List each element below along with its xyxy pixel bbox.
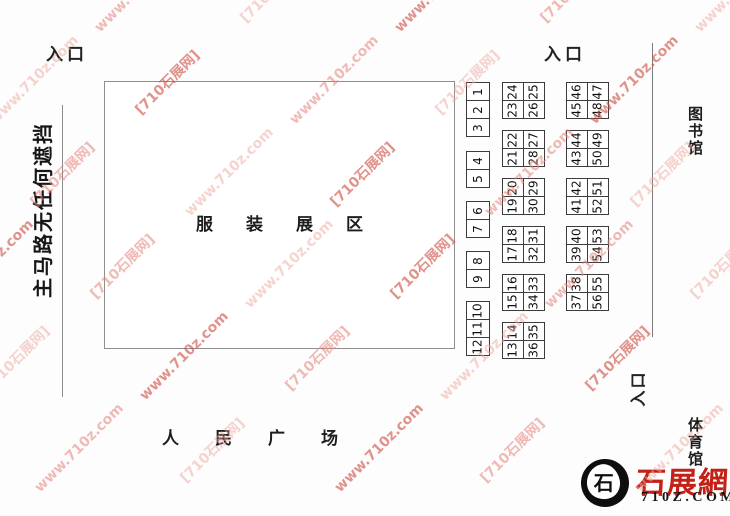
booth-number: 51: [591, 180, 605, 195]
booth-number: 4: [471, 157, 485, 165]
booth-number: 26: [527, 102, 541, 117]
booth-number: 53: [591, 228, 605, 243]
booth-number: 7: [471, 225, 485, 233]
booth-number: 18: [506, 228, 520, 243]
booth-number: 16: [506, 276, 520, 291]
watermark-text: [710石展网]: [0, 0, 9, 27]
booth-number: 14: [506, 324, 520, 339]
booth-number: 27: [527, 132, 541, 147]
booth-number: 31: [527, 228, 541, 243]
booth-number: 17: [506, 246, 520, 261]
booth-cell-47: 47: [587, 82, 609, 101]
booth-number: 54: [591, 246, 605, 261]
entrance-label-bottom-right: 入口: [625, 369, 642, 409]
watermark-text: [710石展网]: [475, 413, 549, 487]
road-boundary-line-right: [652, 43, 653, 337]
booth-cell-49: 49: [587, 130, 609, 149]
booth-number: 38: [570, 276, 584, 291]
booth-number: 2: [471, 106, 485, 114]
watermark-text: [710石展网]: [235, 0, 309, 27]
booth-number: 36: [527, 342, 541, 357]
booth-number: 34: [527, 294, 541, 309]
watermark-text: [710石展网]: [535, 0, 609, 27]
booth-number: 52: [591, 198, 605, 213]
booth-cell-32: 32: [523, 244, 545, 263]
booth-cell-44: 44: [566, 130, 588, 149]
booth-cell-2: 2: [466, 100, 490, 119]
booth-number: 50: [591, 150, 605, 165]
booth-number: 42: [570, 180, 584, 195]
booth-cell-5: 5: [466, 169, 490, 188]
booth-cell-31: 31: [523, 226, 545, 245]
booth-number: 5: [471, 175, 485, 183]
watermark-text: www.710z.com: [32, 400, 127, 495]
booth-number: 25: [527, 84, 541, 99]
booth-number: 1: [471, 88, 485, 96]
booth-cell-53: 53: [587, 226, 609, 245]
booth-cell-26: 26: [523, 100, 545, 119]
booth-cell-51: 51: [587, 178, 609, 197]
booth-number: 15: [506, 294, 520, 309]
booth-cell-20: 20: [502, 178, 524, 197]
booth-number: 22: [506, 132, 520, 147]
plaza-label: 人民广场: [162, 424, 374, 449]
booth-cell-25: 25: [523, 82, 545, 101]
booth-cell-46: 46: [566, 82, 588, 101]
booth-number: 45: [570, 102, 584, 117]
booth-number: 21: [506, 150, 520, 165]
booth-cell-19: 19: [502, 196, 524, 215]
exhibition-area-label: 服装展区: [196, 210, 396, 235]
booth-cell-10: 10: [466, 301, 490, 320]
main-road-label: 主马路无任何遮挡: [27, 85, 53, 335]
booth-number: 41: [570, 198, 584, 213]
booth-number: 8: [471, 257, 485, 265]
booth-number: 55: [591, 276, 605, 291]
booth-cell-6: 6: [466, 201, 490, 220]
library-label: 图书馆: [685, 106, 706, 157]
booth-cell-52: 52: [587, 196, 609, 215]
booth-number: 29: [527, 180, 541, 195]
booth-cell-30: 30: [523, 196, 545, 215]
booth-cell-40: 40: [566, 226, 588, 245]
booth-number: 32: [527, 246, 541, 261]
logo-seal-icon: 石: [577, 455, 634, 512]
booth-cell-43: 43: [566, 148, 588, 167]
booth-cell-22: 22: [502, 130, 524, 149]
booth-number: 47: [591, 84, 605, 99]
booth-number: 13: [506, 342, 520, 357]
booth-cell-27: 27: [523, 130, 545, 149]
booth-number: 20: [506, 180, 520, 195]
watermark-text: www.710z.com: [392, 0, 487, 36]
booth-cell-23: 23: [502, 100, 524, 119]
booth-cell-28: 28: [523, 148, 545, 167]
booth-cell-18: 18: [502, 226, 524, 245]
booth-cell-16: 16: [502, 274, 524, 293]
booth-number: 44: [570, 132, 584, 147]
booth-cell-7: 7: [466, 219, 490, 238]
booth-number: 40: [570, 228, 584, 243]
booth-number: 56: [591, 294, 605, 309]
booth-cell-17: 17: [502, 244, 524, 263]
booth-cell-35: 35: [523, 322, 545, 341]
watermark-text: www.710z.com: [692, 0, 730, 36]
booth-number: 10: [471, 303, 485, 318]
booth-cell-54: 54: [587, 244, 609, 263]
booth-number: 33: [527, 276, 541, 291]
booth-number: 49: [591, 132, 605, 147]
booth-cell-9: 9: [466, 269, 490, 288]
booth-cell-3: 3: [466, 118, 490, 137]
booth-number: 23: [506, 102, 520, 117]
booth-number: 6: [471, 207, 485, 215]
watermark-text: www.710z.com: [92, 0, 187, 36]
booth-number: 3: [471, 124, 485, 132]
booth-number: 48: [591, 102, 605, 117]
floor-plan: 入口 入口 入口 主马路无任何遮挡 服装展区 人民广场 图书馆 体育馆 1234…: [0, 0, 730, 516]
booth-number: 9: [471, 275, 485, 283]
booth-number: 37: [570, 294, 584, 309]
booth-number: 39: [570, 246, 584, 261]
booth-number: 11: [471, 321, 485, 336]
booth-cell-21: 21: [502, 148, 524, 167]
booth-cell-37: 37: [566, 292, 588, 311]
booth-cell-29: 29: [523, 178, 545, 197]
booth-cell-38: 38: [566, 274, 588, 293]
booth-cell-1: 1: [466, 82, 490, 101]
booth-cell-15: 15: [502, 292, 524, 311]
booth-cell-48: 48: [587, 100, 609, 119]
booth-cell-33: 33: [523, 274, 545, 293]
booth-cell-42: 42: [566, 178, 588, 197]
booth-number: 43: [570, 150, 584, 165]
entrance-label-top-left: 入口: [46, 40, 88, 65]
logo-domain-text: 710Z.COM: [641, 490, 730, 506]
booth-cell-14: 14: [502, 322, 524, 341]
booth-cell-55: 55: [587, 274, 609, 293]
booth-cell-41: 41: [566, 196, 588, 215]
booth-cell-39: 39: [566, 244, 588, 263]
booth-number: 28: [527, 150, 541, 165]
entrance-label-top-right: 入口: [544, 40, 586, 65]
road-boundary-line-left: [62, 105, 63, 397]
booth-number: 19: [506, 198, 520, 213]
logo-seal-character: 石: [593, 467, 613, 496]
booth-number: 46: [570, 84, 584, 99]
booth-number: 30: [527, 198, 541, 213]
booth-cell-12: 12: [466, 337, 490, 356]
booth-number: 35: [527, 324, 541, 339]
booth-number: 24: [506, 84, 520, 99]
booth-cell-36: 36: [523, 340, 545, 359]
booth-cell-56: 56: [587, 292, 609, 311]
booth-cell-45: 45: [566, 100, 588, 119]
booth-number: 12: [471, 339, 485, 354]
booth-cell-34: 34: [523, 292, 545, 311]
booth-cell-11: 11: [466, 319, 490, 338]
booth-cell-50: 50: [587, 148, 609, 167]
booth-cell-13: 13: [502, 340, 524, 359]
watermark-text: [710石展网]: [685, 229, 730, 303]
booth-cell-4: 4: [466, 151, 490, 170]
booth-cell-24: 24: [502, 82, 524, 101]
booth-cell-8: 8: [466, 251, 490, 270]
